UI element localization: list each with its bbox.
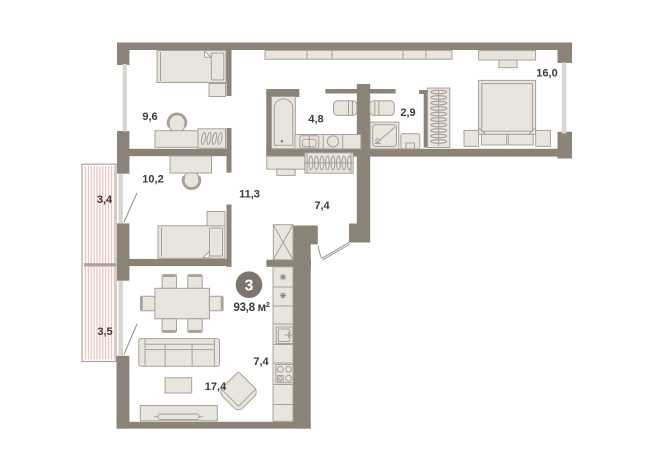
svg-text:3: 3 [245, 278, 254, 295]
svg-text:9,6: 9,6 [142, 111, 157, 123]
svg-text:16,0: 16,0 [536, 68, 557, 80]
svg-text:2,9: 2,9 [400, 107, 415, 119]
svg-text:10,2: 10,2 [142, 174, 163, 186]
svg-text:4,8: 4,8 [308, 114, 323, 126]
svg-text:11,3: 11,3 [239, 189, 260, 201]
svg-text:93,8 м2: 93,8 м2 [234, 300, 270, 314]
svg-text:3,4: 3,4 [97, 194, 113, 206]
svg-text:3,5: 3,5 [97, 326, 112, 338]
svg-text:17,4: 17,4 [205, 381, 227, 393]
svg-text:7,4: 7,4 [253, 356, 269, 368]
svg-text:7,4: 7,4 [314, 200, 330, 212]
